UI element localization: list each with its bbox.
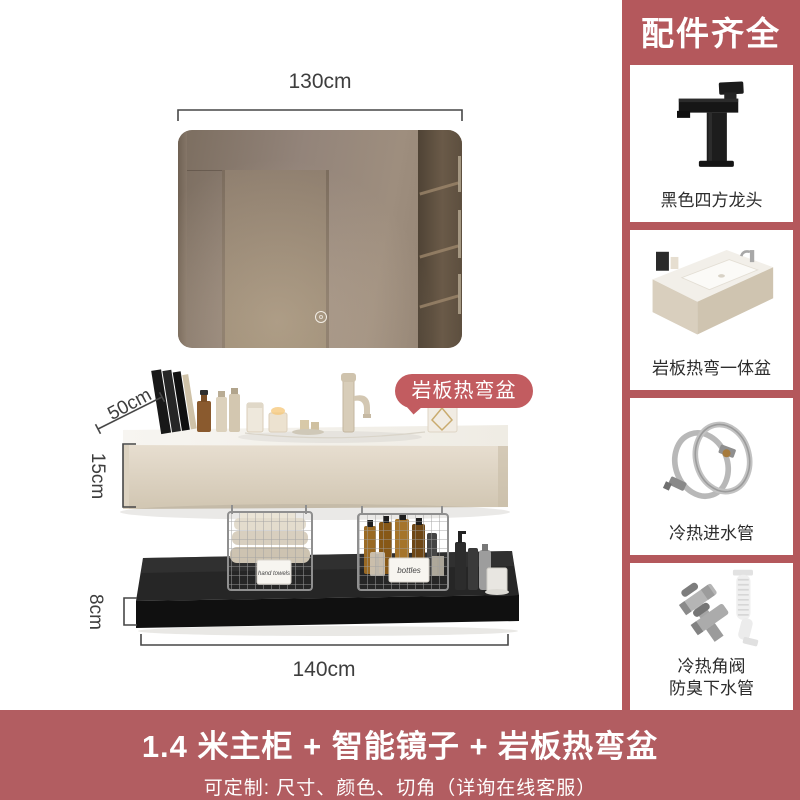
accessory-card-valves: 冷热角阀 防臭下水管 bbox=[630, 563, 793, 710]
slate-one-piece-basin-icon bbox=[630, 230, 793, 358]
accessories-sidebar: 配件齐全 黑色四方龙头 bbox=[622, 0, 800, 710]
sidebar-header: 配件齐全 bbox=[622, 7, 800, 55]
product-title: 1.4 米主柜 + 智能镜子 + 岩板热弯盆 bbox=[0, 721, 800, 766]
card-label: 冷热进水管 bbox=[669, 523, 754, 555]
customization-note: 可定制: 尺寸、颜色、切角（详询在线客服） bbox=[0, 773, 800, 800]
mirror-touch-button-icon bbox=[315, 311, 327, 323]
basket-tag-right: bottles bbox=[397, 566, 421, 575]
card-label: 冷热角阀 防臭下水管 bbox=[669, 656, 754, 710]
vanity-counter bbox=[123, 425, 508, 509]
accessory-card-hoses: 冷热进水管 bbox=[630, 398, 793, 555]
card-label: 岩板热弯一体盆 bbox=[652, 358, 771, 390]
counter-height-dimension: 15cm bbox=[86, 452, 108, 500]
black-square-faucet-icon bbox=[630, 65, 793, 190]
cabinet-width-dimension: 140cm bbox=[254, 658, 394, 682]
badge-label: 岩板热弯盆 bbox=[412, 380, 517, 402]
braided-inlet-hoses-icon bbox=[630, 398, 793, 523]
card-label: 黑色四方龙头 bbox=[661, 190, 763, 222]
product-detail-image: hand towels bottles bbox=[0, 0, 800, 800]
basin-callout-badge: 岩板热弯盆 bbox=[395, 374, 533, 408]
accessory-card-faucet: 黑色四方龙头 bbox=[630, 65, 793, 222]
product-title-banner: 1.4 米主柜 + 智能镜子 + 岩板热弯盆 可定制: 尺寸、颜色、切角（详询在… bbox=[0, 710, 800, 800]
counter-faucet bbox=[341, 373, 371, 432]
accessory-card-basin: 岩板热弯一体盆 bbox=[630, 230, 793, 390]
card-label-line1: 冷热角阀 bbox=[669, 656, 754, 678]
mirror-width-dimension: 130cm bbox=[250, 70, 390, 94]
basket-tag-left: hand towels bbox=[258, 571, 290, 577]
shelf-height-dimension: 8cm bbox=[84, 594, 106, 630]
angle-valves-drain-pipe-icon bbox=[630, 563, 793, 656]
card-label-line2: 防臭下水管 bbox=[669, 678, 754, 700]
